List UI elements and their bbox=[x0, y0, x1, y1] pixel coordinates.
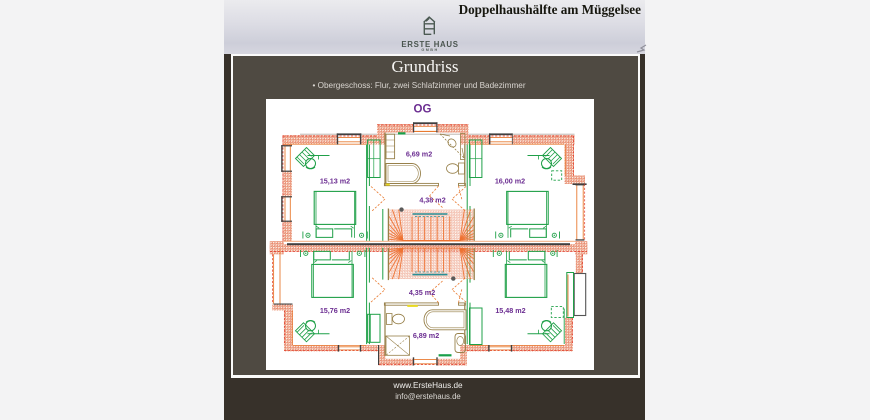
svg-text:15,76 m2: 15,76 m2 bbox=[320, 306, 350, 315]
svg-text:15,48 m2: 15,48 m2 bbox=[495, 306, 525, 315]
svg-text:6,89 m2: 6,89 m2 bbox=[413, 331, 439, 340]
svg-text:4,35 m2: 4,35 m2 bbox=[409, 288, 435, 297]
svg-text:4,38 m2: 4,38 m2 bbox=[419, 196, 445, 205]
svg-text:15,13 m2: 15,13 m2 bbox=[320, 176, 350, 185]
svg-text:6,69 m2: 6,69 m2 bbox=[406, 150, 432, 159]
svg-text:OG: OG bbox=[414, 104, 432, 116]
svg-text:16,00 m2: 16,00 m2 bbox=[495, 177, 525, 186]
